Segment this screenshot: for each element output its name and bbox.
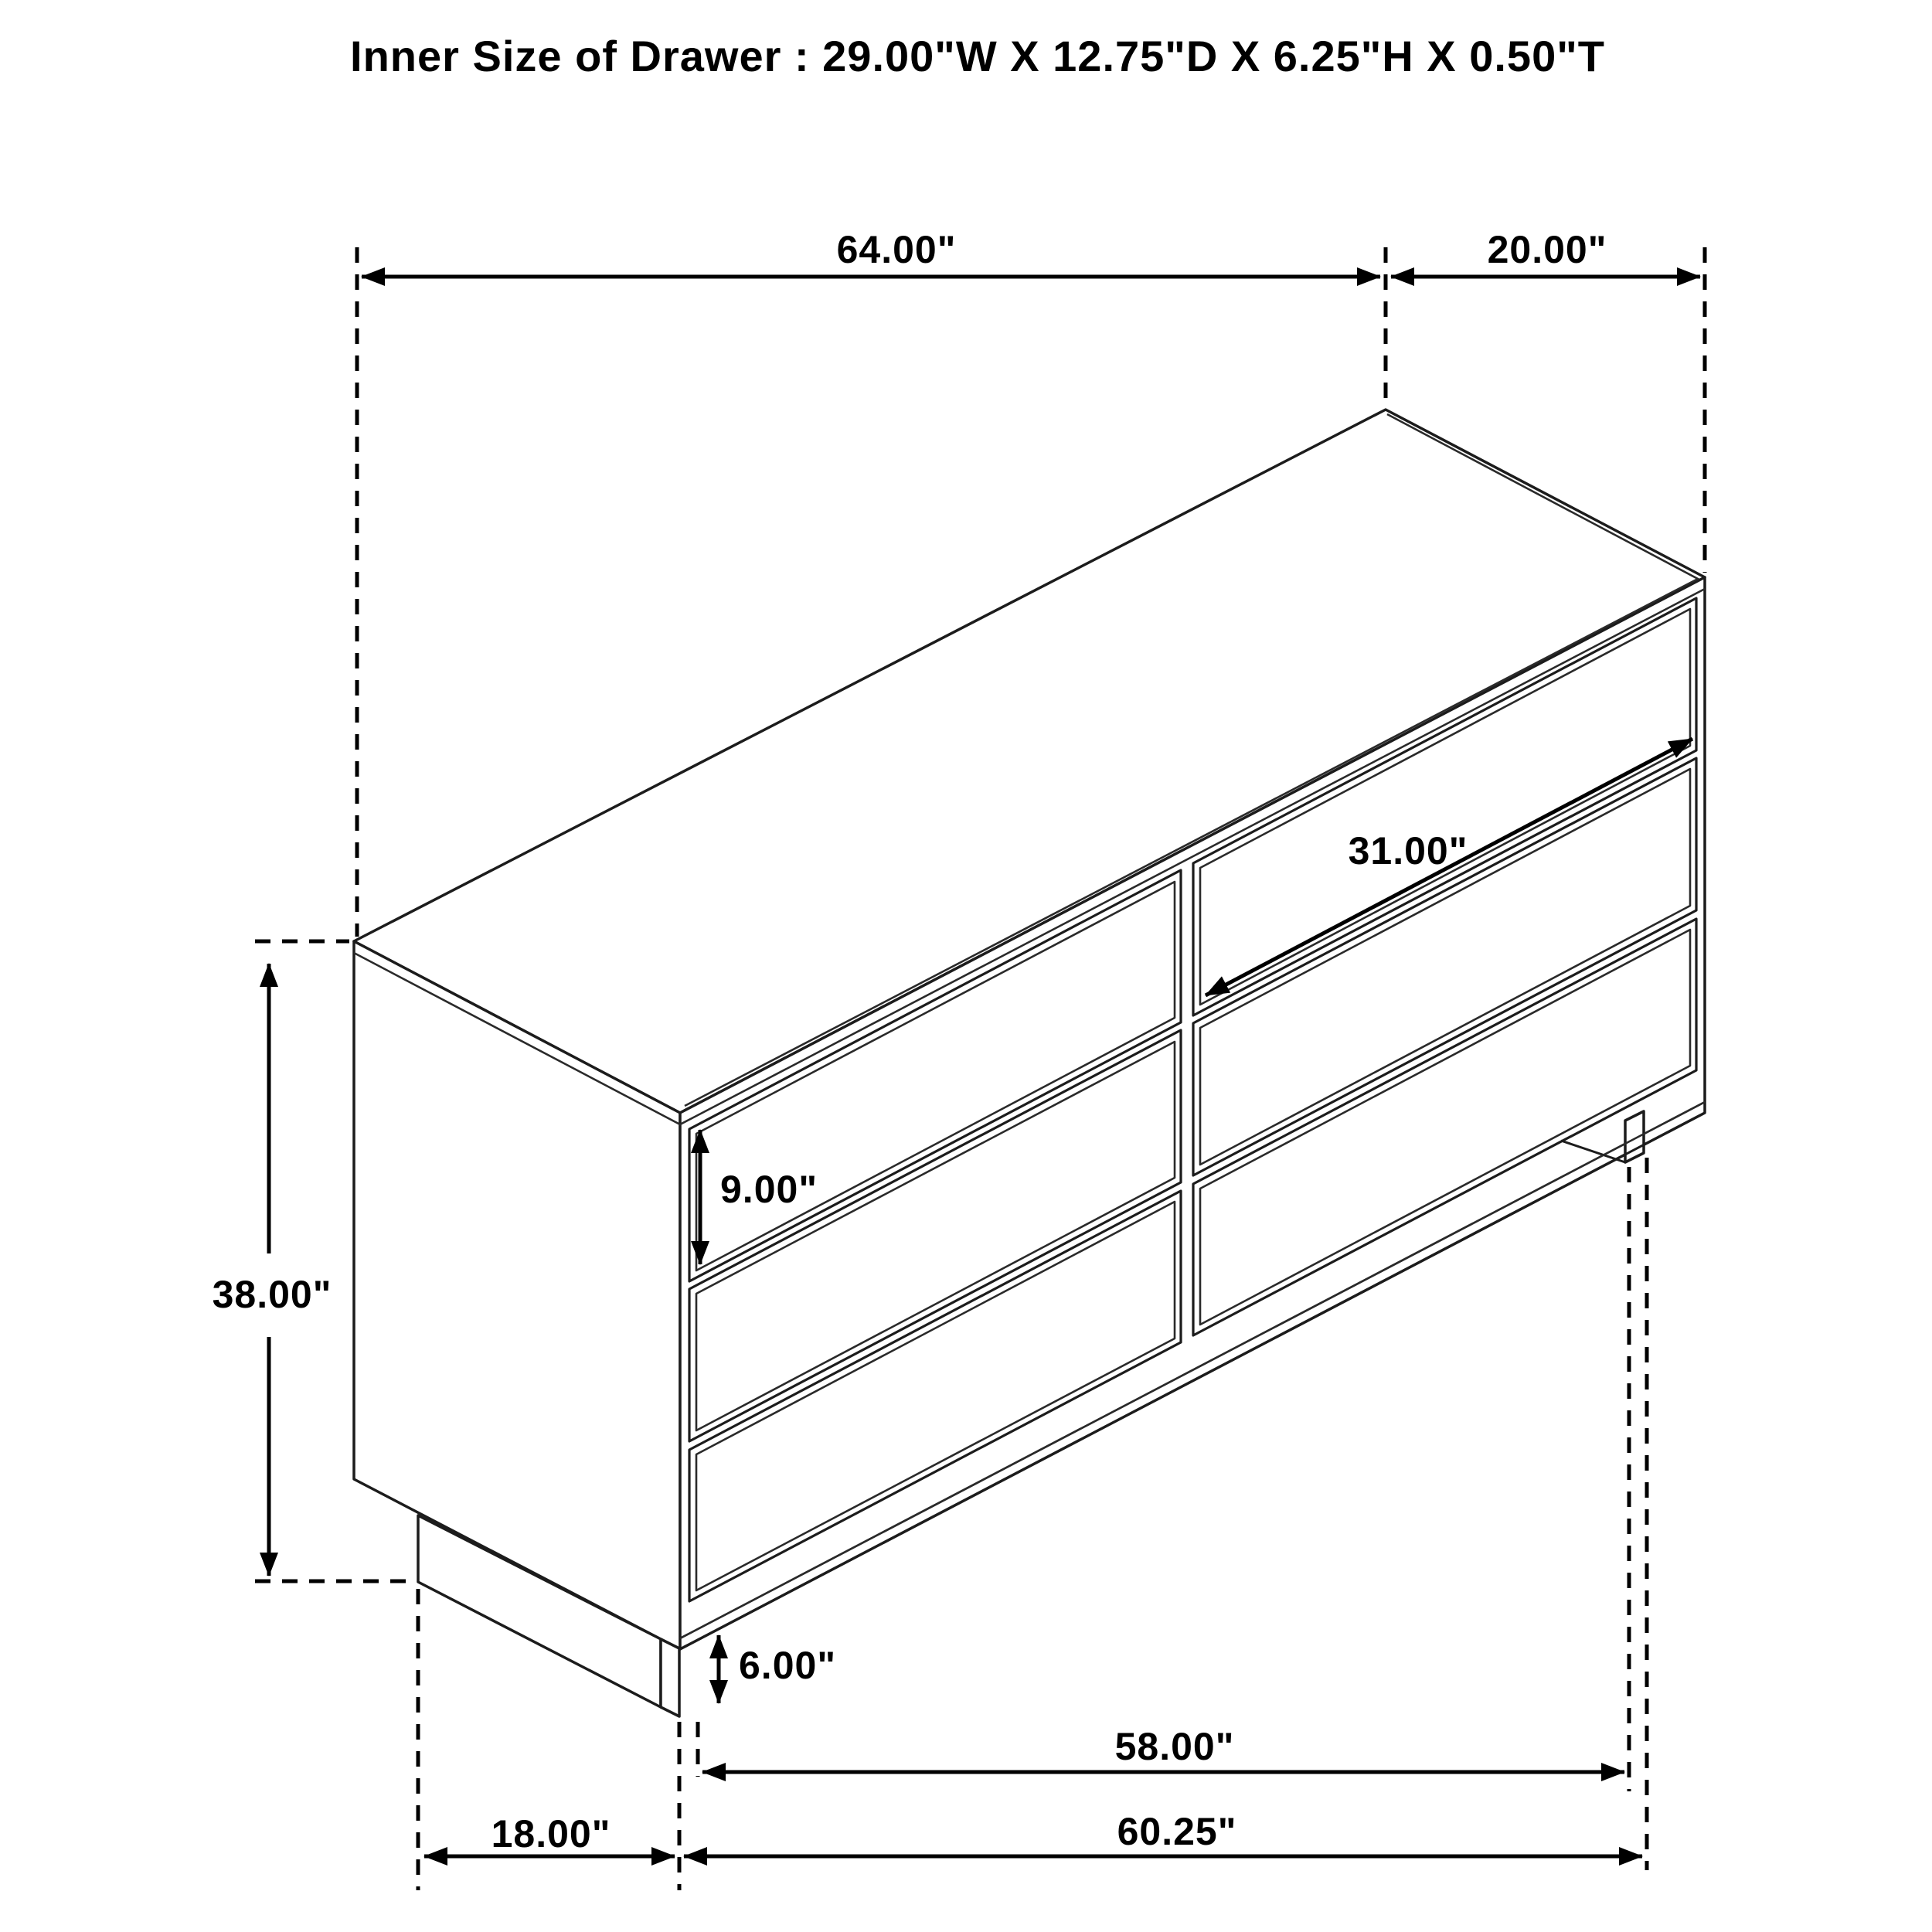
label-base-depth: 18.00": [492, 1812, 611, 1855]
dresser-dimension-diagram: Inner Size of Drawer : 29.00"W X 12.75"D…: [0, 0, 1932, 1932]
drawing-title: Inner Size of Drawer : 29.00"W X 12.75"D…: [350, 32, 1605, 80]
label-overall-depth: 20.00": [1488, 228, 1607, 271]
label-drawer-width: 31.00": [1349, 829, 1468, 872]
right-foot-front-face: [1625, 1111, 1644, 1162]
label-base-height: 6.00": [739, 1644, 836, 1687]
dimension-drawing-canvas: Inner Size of Drawer : 29.00"W X 12.75"D…: [0, 0, 1932, 1932]
label-leg-outer-span: 60.25": [1117, 1810, 1237, 1853]
label-overall-width: 64.00": [837, 228, 957, 271]
left-foot-front-face: [661, 1639, 679, 1716]
label-overall-height: 38.00": [213, 1273, 332, 1316]
label-drawer-front-height: 9.00": [720, 1168, 818, 1211]
label-leg-inner-span: 58.00": [1115, 1725, 1235, 1768]
